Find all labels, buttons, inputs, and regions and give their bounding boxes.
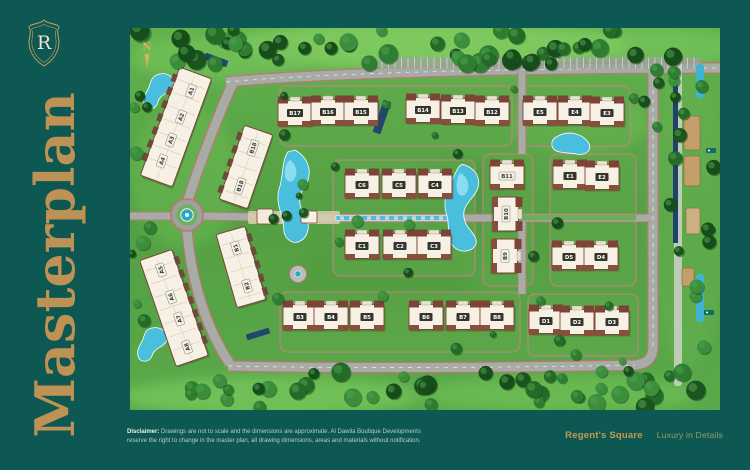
svg-text:E3: E3	[603, 111, 611, 117]
disclaimer-text: Disclaimer: Drawings are not to scale an…	[127, 428, 457, 446]
svg-text:C2: C2	[396, 244, 404, 250]
svg-text:E1: E1	[566, 174, 574, 180]
building-B16: B16	[311, 96, 347, 127]
svg-text:B11: B11	[501, 174, 513, 180]
building-E2: E2	[585, 161, 621, 192]
disclaimer-label: Disclaimer:	[127, 429, 159, 435]
building-C3: C3	[417, 230, 453, 261]
building-D4: D4	[584, 241, 620, 272]
building-B8: B8	[480, 301, 516, 332]
disclaimer-line2: reserve the right to change in the maste…	[127, 438, 421, 444]
roundabout	[171, 199, 203, 231]
building-B15: B15	[344, 96, 380, 127]
building-C5: C5	[382, 169, 418, 200]
crest-logo: R	[23, 17, 65, 69]
crest-letter: R	[37, 32, 52, 54]
svg-text:B10: B10	[504, 208, 510, 220]
building-B4: B4	[314, 301, 350, 332]
building-B11: B11	[490, 160, 526, 191]
svg-text:E4: E4	[571, 110, 579, 116]
svg-text:B8: B8	[493, 315, 501, 321]
building-E1: E1	[553, 160, 589, 191]
svg-text:B4: B4	[327, 315, 335, 321]
svg-text:C6: C6	[358, 183, 366, 189]
building-C1: C1	[345, 230, 381, 261]
building-E5: E5	[523, 96, 559, 127]
svg-text:B3: B3	[296, 315, 304, 321]
svg-text:C1: C1	[358, 244, 366, 250]
building-E4: E4	[558, 96, 594, 127]
svg-text:D4: D4	[597, 255, 605, 261]
svg-text:D3: D3	[608, 320, 616, 326]
building-E3: E3	[590, 97, 626, 128]
svg-text:D5: D5	[565, 255, 573, 261]
svg-text:C4: C4	[431, 183, 439, 189]
svg-text:C3: C3	[430, 244, 438, 250]
svg-text:B7: B7	[459, 315, 467, 321]
disclaimer-line1: Drawings are not to scale and the dimens…	[159, 429, 420, 435]
building-B13: B13	[441, 95, 477, 126]
building-B17: B17	[278, 97, 314, 128]
svg-text:D1: D1	[542, 319, 550, 325]
svg-text:E2: E2	[598, 175, 606, 181]
building-D2: D2	[560, 306, 596, 337]
svg-text:E5: E5	[536, 110, 544, 116]
building-B9: B9	[491, 239, 522, 275]
compass-n-label: N	[142, 42, 151, 53]
svg-text:D2: D2	[573, 320, 581, 326]
building-D1: D1	[529, 305, 565, 336]
page-title: Masterplan	[20, 85, 90, 445]
footer-brand-row: Regent's Square Luxury in Details	[555, 430, 723, 441]
masterplan-map: A1A2A3A4A5A6A7A8B18B18B1B2B17B16B15B14B1…	[130, 28, 720, 410]
building-B3: B3	[283, 301, 319, 332]
svg-text:B6: B6	[422, 315, 430, 321]
building-B14: B14	[406, 94, 442, 125]
svg-text:C5: C5	[395, 183, 403, 189]
building-B10: B10	[492, 197, 523, 233]
masterplan-svg: A1A2A3A4A5A6A7A8B18B18B1B2B17B16B15B14B1…	[130, 28, 720, 410]
masterplan-page: R Masterplan	[0, 0, 750, 470]
building-C2: C2	[383, 230, 419, 261]
svg-text:B5: B5	[363, 315, 371, 321]
svg-text:B15: B15	[355, 110, 367, 116]
svg-text:B12: B12	[486, 110, 498, 116]
building-B7: B7	[446, 301, 482, 332]
building-C6: C6	[345, 169, 381, 200]
svg-text:B17: B17	[289, 111, 301, 117]
building-B6: B6	[409, 301, 445, 332]
building-D5: D5	[552, 241, 588, 272]
svg-text:B14: B14	[417, 108, 429, 114]
brand-tagline: Luxury in Details	[657, 430, 723, 440]
plaza-fountain-south	[290, 266, 307, 283]
brand-name: Regent's Square	[565, 430, 643, 441]
svg-text:B9: B9	[503, 252, 509, 260]
svg-text:B13: B13	[452, 109, 464, 115]
building-B5: B5	[350, 301, 386, 332]
building-C4: C4	[418, 169, 454, 200]
building-B12: B12	[475, 96, 511, 127]
svg-text:B16: B16	[322, 110, 334, 116]
